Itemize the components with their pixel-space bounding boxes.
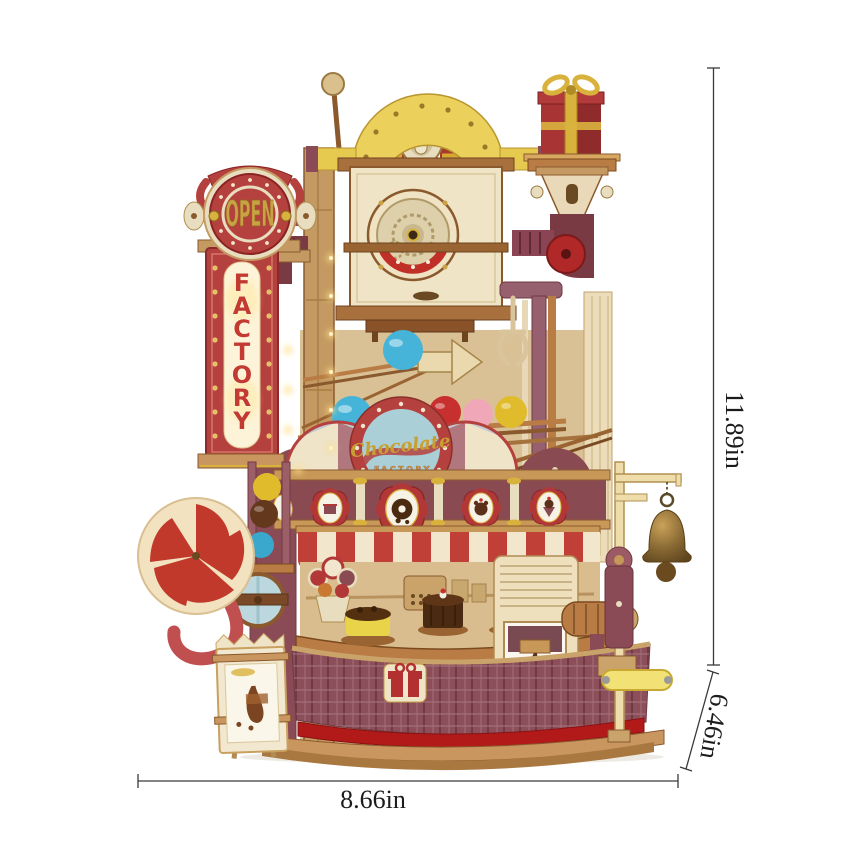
bell-icon [643,510,691,582]
factory-sign: F A C T O R Y [198,240,310,468]
channel-marble-yellow [253,473,281,501]
dimension-depth: 6.46in [680,670,734,771]
height-label: 11.89in [720,391,749,469]
dimension-height: 11.89in [707,68,749,665]
gift-box-tower [512,74,620,278]
factory-letter-7: Y [232,407,251,435]
open-sign-text: OPEN [225,192,274,235]
crank-handle [598,656,672,690]
product-dimension-image: Chocolate FACTORY [0,0,856,856]
elbow-pipe [512,214,594,278]
easel-menu-board [212,633,292,760]
illustration-svg: Chocolate FACTORY [0,0,856,856]
width-label: 8.66in [340,785,406,814]
gift-box [538,74,604,158]
lollipop [138,498,254,659]
striker-paddle [605,547,633,648]
dimension-width: 8.66in [138,774,678,814]
gift-emblem [384,664,426,702]
factory-sign-letters: F A C T O R Y [232,269,252,435]
marble-run-model: Chocolate FACTORY [138,73,691,770]
funnel-hopper [531,167,613,216]
marble-blue-top [383,330,423,370]
yellow-cake [341,606,395,646]
gear-gauge [368,190,458,280]
bell-ring [661,494,673,506]
depth-label: 6.46in [694,692,734,762]
channel-marble-brown [250,500,278,528]
